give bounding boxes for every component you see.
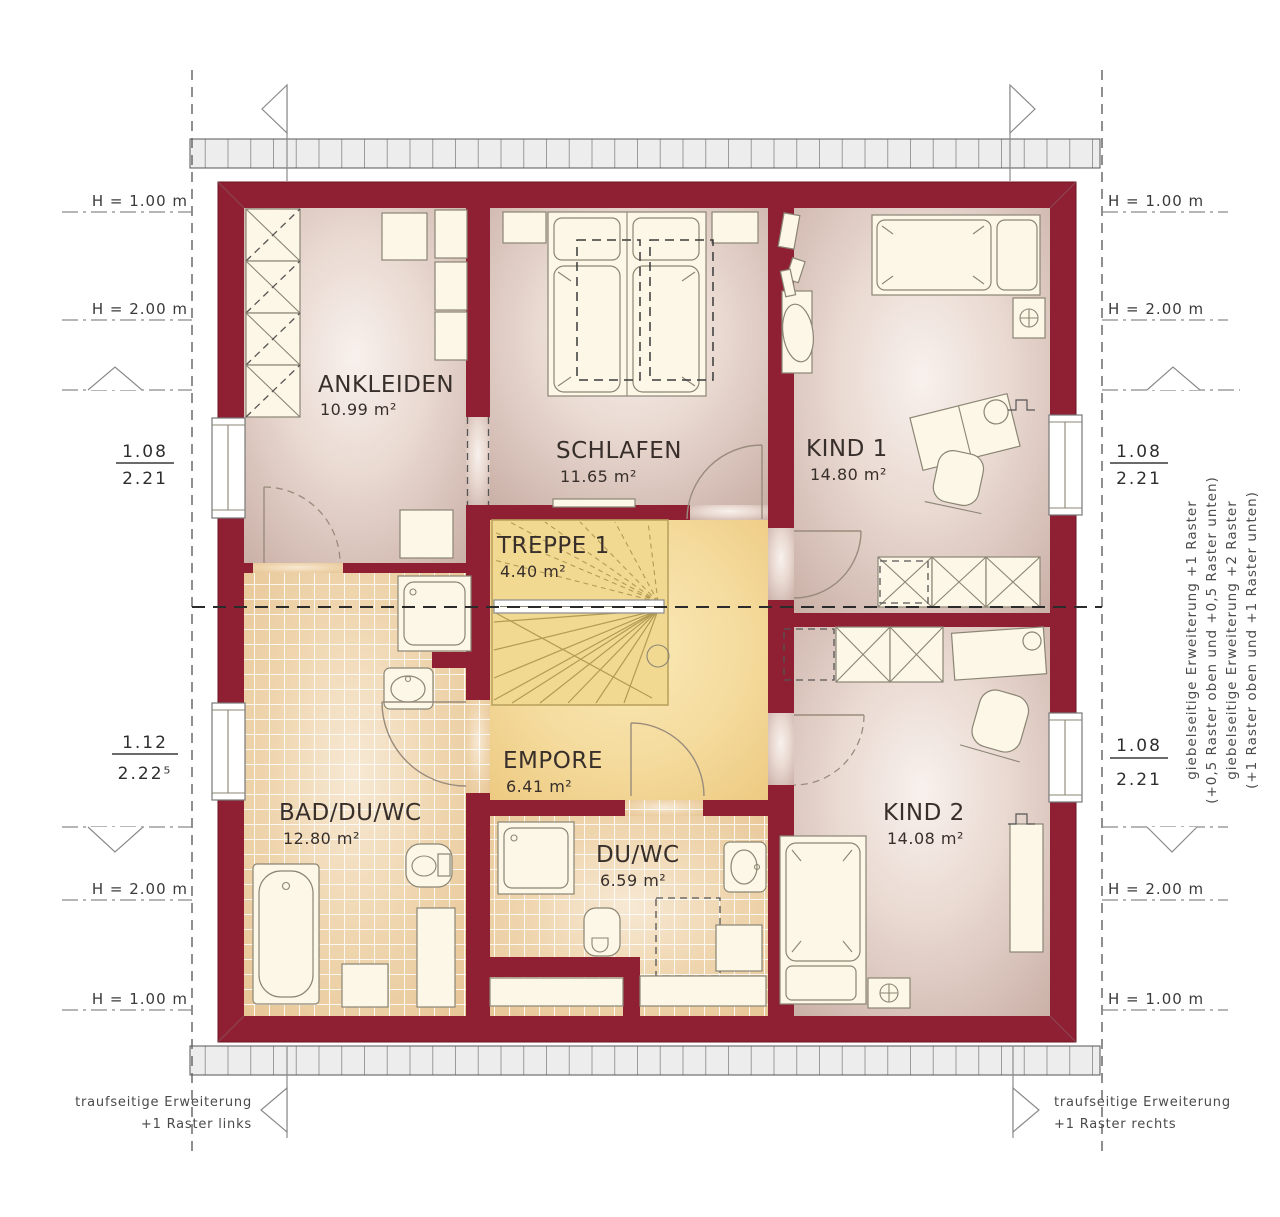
room-area-duwc: 6.59 m²	[600, 871, 666, 890]
roof-band-bottom	[190, 1046, 1100, 1075]
room-label-kind1: KIND 1	[806, 436, 888, 462]
dim-num: 1.08	[1116, 442, 1162, 462]
wardrobe-icon	[246, 209, 300, 417]
bathtub-icon	[253, 864, 319, 1004]
dim-num: 1.12	[122, 733, 168, 753]
room-area-kind1: 14.80 m²	[810, 465, 887, 484]
height-label-right-bottom-2: H = 2.00 m	[1108, 880, 1204, 898]
gable-annotation-right: giebelseitige Erweiterung +1 Raster (+0,…	[1184, 476, 1260, 804]
cabinet-icon	[342, 964, 388, 1007]
window-dimension-right-top: 1.08 2.21	[1110, 442, 1168, 489]
dim-den: 2.22⁵	[118, 764, 173, 784]
gable-note-line4: (+1 Raster oben und +1 Raster unten)	[1244, 491, 1260, 789]
roof-band-top	[190, 139, 1100, 168]
room-area-schlafen: 11.65 m²	[560, 467, 637, 486]
desk-icon	[952, 627, 1047, 680]
room-area-ankleiden: 10.99 m²	[320, 400, 397, 419]
room-label-schlafen: SCHLAFEN	[556, 438, 682, 464]
height-label-right-top-1: H = 1.00 m	[1108, 192, 1204, 210]
window-icon	[1049, 713, 1082, 802]
dim-num: 1.08	[122, 442, 168, 462]
room-label-ankleiden: ANKLEIDEN	[318, 372, 454, 398]
dim-num: 1.08	[1116, 736, 1162, 756]
window-icon	[212, 703, 245, 800]
radiator-icon	[553, 499, 635, 507]
sink-icon	[724, 842, 766, 892]
eave-note-line1: traufseitige Erweiterung	[1054, 1095, 1231, 1110]
floor-plan-canvas: H = 1.00 m H = 2.00 m H = 2.00 m H = 1.0…	[0, 0, 1280, 1217]
nightstand-icon	[868, 978, 910, 1008]
room-label-bad: BAD/DU/WC	[279, 800, 422, 826]
room-area-kind2: 14.08 m²	[887, 829, 964, 848]
room-area-empore: 6.41 m²	[506, 777, 572, 796]
room-label-empore: EMPORE	[503, 748, 603, 774]
bed-icon	[872, 215, 1040, 295]
bed-icon	[780, 836, 866, 1004]
wardrobe-icon	[878, 557, 1040, 607]
dim-den: 2.21	[122, 469, 168, 489]
cabinet-icon	[716, 925, 762, 971]
window-icon	[212, 418, 245, 518]
shower-icon	[398, 576, 471, 651]
nightstand-icon	[1013, 298, 1045, 338]
dim-den: 2.21	[1116, 469, 1162, 489]
eave-note-line1: traufseitige Erweiterung	[75, 1095, 252, 1110]
room-area-treppe: 4.40 m²	[500, 562, 566, 581]
floor-plan-drawing: H = 1.00 m H = 2.00 m H = 2.00 m H = 1.0…	[0, 0, 1280, 1217]
gable-note-line1: giebelseitige Erweiterung +1 Raster	[1184, 500, 1200, 780]
toilet-icon	[406, 844, 452, 887]
bench-icon	[490, 978, 623, 1006]
room-label-treppe: TREPPE 1	[496, 533, 610, 559]
height-label-right-top-2: H = 2.00 m	[1108, 300, 1204, 318]
dim-den: 2.21	[1116, 770, 1162, 790]
cabinet-icon	[417, 908, 455, 1007]
bench-icon	[640, 976, 766, 1006]
window-dimension-left-bottom: 1.12 2.22⁵	[112, 733, 178, 784]
sink-icon	[384, 668, 433, 709]
height-marks-left: H = 1.00 m H = 2.00 m H = 2.00 m H = 1.0…	[62, 192, 192, 1010]
room-area-bad: 12.80 m²	[283, 829, 360, 848]
shower-icon	[498, 822, 574, 894]
window-dimension-right-bottom: 1.08 2.21	[1110, 736, 1168, 790]
window-icon	[1049, 415, 1082, 515]
room-label-duwc: DU/WC	[596, 842, 680, 868]
eave-note-line2: +1 Raster links	[141, 1117, 252, 1132]
gable-note-line2: (+0,5 Raster oben und +0,5 Raster unten)	[1204, 476, 1220, 804]
window-dimension-left-top: 1.08 2.21	[116, 442, 174, 489]
height-label-left-bottom-2: H = 2.00 m	[92, 880, 188, 898]
height-label-left-top-2: H = 2.00 m	[92, 300, 188, 318]
desk-icon	[1010, 824, 1043, 952]
room-label-kind2: KIND 2	[883, 800, 965, 826]
eave-note-line2: +1 Raster rechts	[1054, 1117, 1176, 1132]
height-label-right-bottom-1: H = 1.00 m	[1108, 990, 1204, 1008]
height-label-left-top-1: H = 1.00 m	[92, 192, 188, 210]
height-label-left-bottom-1: H = 1.00 m	[92, 990, 188, 1008]
toilet-icon	[584, 908, 620, 956]
gable-note-line3: giebelseitige Erweiterung +2 Raster	[1224, 500, 1240, 780]
